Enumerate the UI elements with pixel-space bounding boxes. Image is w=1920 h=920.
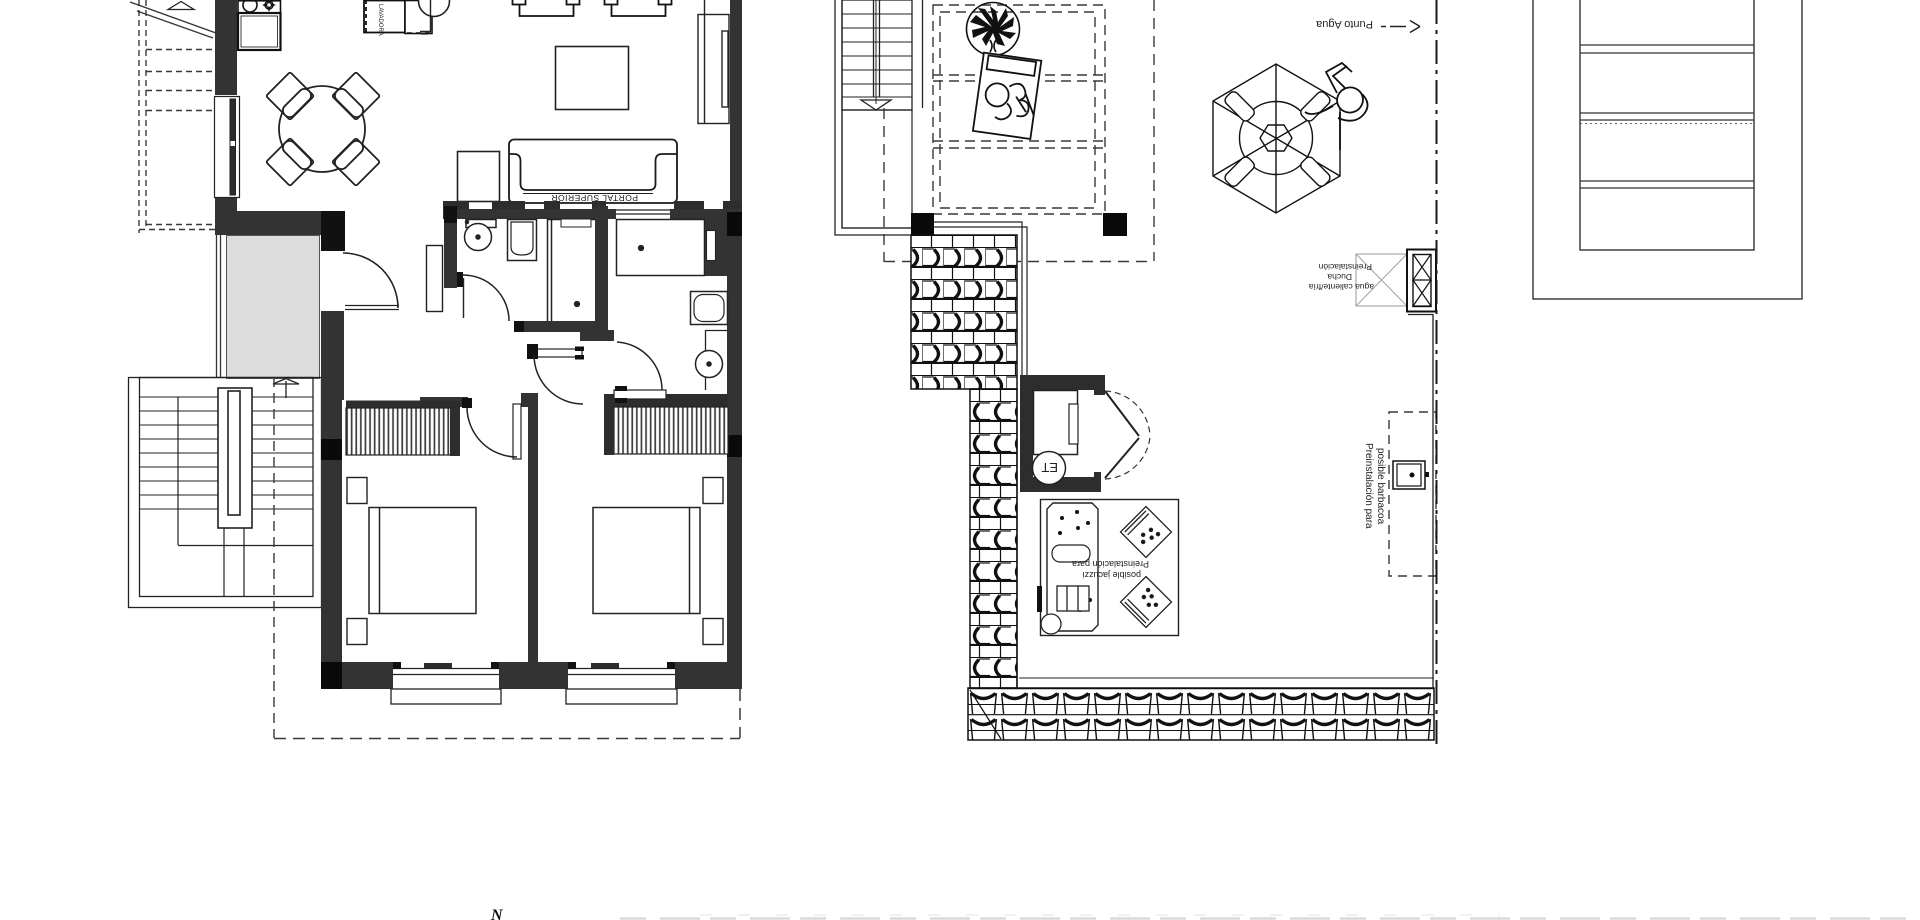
svg-text:posible jacuzzi: posible jacuzzi <box>1082 570 1141 580</box>
svg-text:LAVADORA: LAVADORA <box>377 4 383 36</box>
svg-text:Punto Agua: Punto Agua <box>1315 18 1373 30</box>
svg-text:posible barbacoa: posible barbacoa <box>1375 448 1386 525</box>
svg-text:Ducha: Ducha <box>1327 272 1352 282</box>
svg-text:Preinstalación para: Preinstalación para <box>1072 559 1149 569</box>
svg-text:N: N <box>490 907 504 920</box>
svg-text:agua caliente/fría: agua caliente/fría <box>1309 282 1374 292</box>
svg-text:Preinstalación: Preinstalación <box>1318 262 1372 272</box>
svg-text:ET: ET <box>1041 460 1058 475</box>
svg-text:Preinstalación para: Preinstalación para <box>1363 443 1374 529</box>
